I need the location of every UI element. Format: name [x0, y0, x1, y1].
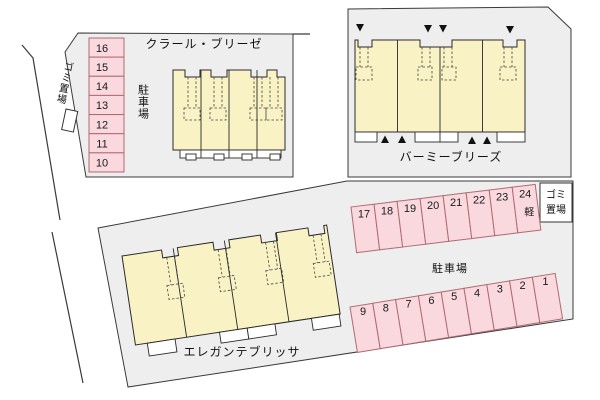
building-top-left-porch-4 [270, 154, 280, 160]
garbage-area-label-right-line1: ゴミ [546, 188, 566, 201]
stall-number-23: 23 [496, 192, 508, 204]
stall-number-14: 14 [96, 81, 108, 93]
stall-number-16: 16 [96, 43, 108, 55]
building-name-top-left: クラール・ブリーゼ [145, 36, 262, 51]
site-plan-svg: クラール・ブリーゼ バーミーブリーズ [0, 0, 600, 400]
stall-number-8: 8 [383, 302, 389, 314]
stall-number-12: 12 [96, 119, 108, 131]
garbage-area-label-right-line2: 置場 [546, 203, 566, 216]
kei-car-label: 軽 [524, 206, 534, 218]
stall-number-13: 13 [96, 100, 108, 112]
stall-number-9: 9 [360, 306, 366, 318]
stall-number-5: 5 [451, 291, 457, 303]
building-top-left-porch-3 [242, 154, 252, 160]
garbage-area-box-right [540, 183, 572, 222]
building-top-right-entrance-1 [355, 132, 377, 142]
stall-number-6: 6 [428, 295, 434, 307]
stall-number-2: 2 [520, 280, 526, 292]
stall-number-18: 18 [381, 206, 393, 218]
parking-lot-label-left: 駐車場 [136, 84, 148, 120]
stall-number-15: 15 [96, 62, 108, 74]
stall-number-1: 1 [542, 276, 548, 288]
building-name-bottom: エレガンテブリッサ [183, 344, 300, 359]
building-top-right-entrance-3 [497, 132, 525, 142]
parking-lot-label-right: 駐車場 [432, 261, 468, 275]
site-plan: クラール・ブリーゼ バーミーブリーズ [0, 0, 600, 400]
garbage-bin-icon [62, 109, 78, 132]
stall-number-3: 3 [497, 284, 503, 296]
stall-number-19: 19 [404, 203, 416, 215]
building-top-right-entrance-2 [415, 132, 458, 142]
stall-number-22: 22 [473, 194, 485, 206]
building-top-left-porch-2 [214, 154, 224, 160]
stall-number-17: 17 [358, 209, 370, 221]
building-name-top-right: バーミーブリーズ [400, 149, 503, 164]
building-top-left-porch-1 [186, 154, 196, 160]
stall-number-7: 7 [406, 299, 412, 311]
stall-number-24: 24 [519, 189, 531, 201]
stall-number-11: 11 [96, 139, 107, 151]
stall-number-21: 21 [450, 197, 462, 209]
stall-number-20: 20 [427, 200, 439, 212]
stall-number-10: 10 [96, 158, 108, 170]
stall-number-4: 4 [474, 287, 480, 299]
